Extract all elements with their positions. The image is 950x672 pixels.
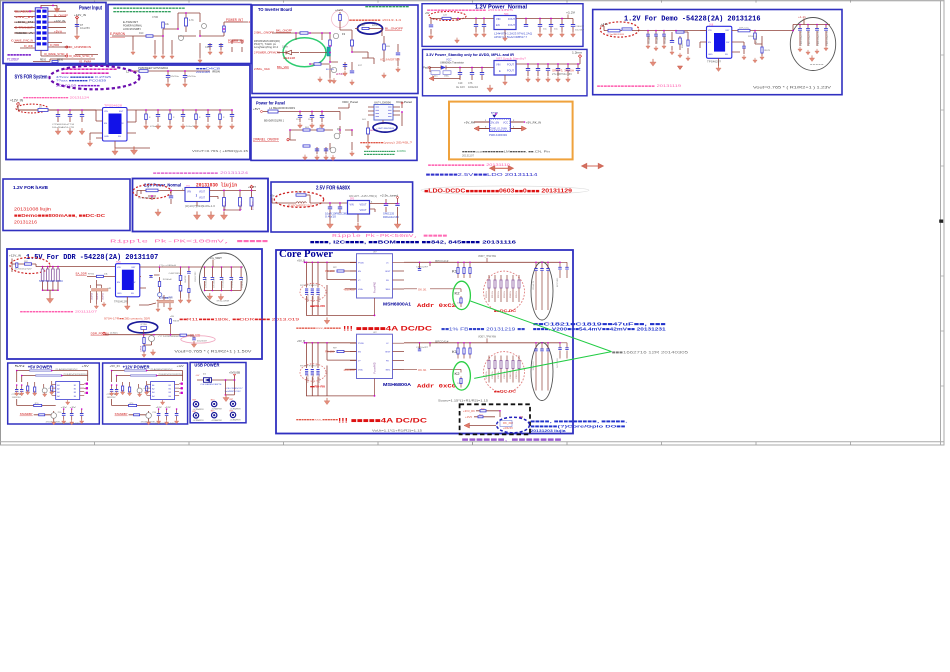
- svg-text:VCC: VCC: [503, 122, 508, 125]
- svg-text:P/C?PTP1/R5?: P/C?PTP1/R5?: [300, 365, 318, 367]
- svg-text:C?3/100u/R: C?3/100u/R: [232, 277, 234, 288]
- svg-text:27u DR?10u 16V: 27u DR?10u 16V: [552, 73, 572, 76]
- svg-text:100u/6.3V: 100u/6.3V: [533, 361, 535, 371]
- svg-text:100u/R51: 100u/R51: [657, 34, 659, 44]
- svg-text:R8%L: R8%L: [175, 273, 182, 275]
- svg-text:R288/100: R288/100: [319, 294, 321, 302]
- svg-text:R088/100: R088/100: [307, 374, 309, 382]
- svg-text:NC/C1821: NC/C1821: [557, 277, 559, 287]
- svg-text:STANDBY: STANDBY: [115, 412, 128, 416]
- svg-text:+5V_IN: +5V_IN: [110, 365, 120, 368]
- svg-text:+5V: +5V: [425, 12, 430, 15]
- svg-text:VDD_Panel: VDD_Panel: [342, 100, 358, 104]
- svg-text:FOUT: FOUT: [507, 63, 514, 67]
- svg-text:PowerPAD: PowerPAD: [374, 282, 377, 293]
- svg-text:MSH6800A: MSH6800A: [383, 382, 412, 387]
- svg-text:R822/1k: R822/1k: [498, 291, 500, 298]
- svg-text:U9 LD?...A15 U?R(1): U9 LD?...A15 U?R(1): [349, 195, 377, 198]
- svg-text:(Ω)10(?)p94[9-09+1.0: (Ω)10(?)p94[9-09+1.0: [185, 206, 216, 208]
- svg-text:SEE-A: SEE-A: [15, 31, 35, 35]
- svg-text:PVDD: PVDD: [358, 263, 365, 265]
- svg-text:MSH6000A1: MSH6000A1: [383, 302, 412, 307]
- svg-text:+5V-A: +5V-A: [54, 30, 63, 34]
- svg-text:■■■■■■■■■■■■■■■■■ 20111107: ■■■■■■■■■■■■■■■■■ 20111107: [20, 310, 98, 314]
- svg-text:C160/C?: C160/C?: [575, 26, 585, 28]
- svg-text:TPS4628?: TPS4628?: [707, 62, 722, 64]
- svg-text:R17: R17: [358, 65, 363, 67]
- svg-text:+5V?: +5V?: [253, 107, 260, 111]
- svg-text:TPS0412R: TPS0412R: [114, 301, 127, 304]
- svg-text:+1u: +1u: [143, 388, 146, 390]
- svg-text:#R1(+/-R5R: #R1(+/-R5R: [216, 300, 230, 302]
- svg-text:■LDO-DCDC■■■■■■■■0603■■0■■■ 2: ■LDO-DCDC■■■■■■■■0603■■0■■■ 20131129: [424, 188, 572, 194]
- svg-text:C33: C33: [205, 46, 210, 49]
- svg-text:12: 12: [126, 70, 130, 74]
- svg-text:R: R: [149, 117, 151, 119]
- svg-text:■■■■■■■■■■■■■■■■■ 20131124: ■■■■■■■■■■■■■■■■■ 20131124: [23, 96, 90, 100]
- svg-text:VGA: VGA: [358, 369, 363, 372]
- svg-text:■■R8-R0: ■■R8-R0: [310, 384, 326, 388]
- svg-text:+5V: +5V: [82, 365, 90, 368]
- svg-text:C8[10u/R?: C8[10u/R?: [416, 347, 429, 349]
- svg-text:E-PWRON: E-PWRON: [110, 32, 126, 36]
- svg-text:GND: GND: [104, 136, 109, 138]
- svg-text:■■■■, I2C■■■■, ■■BOM■■■■■ ■■84: ■■■■, I2C■■■■, ■■BOM■■■■■ ■■842, 845■■■■…: [310, 240, 517, 246]
- svg-text:S01: S01: [362, 119, 367, 121]
- svg-text:20131216: 20131216: [14, 220, 37, 225]
- svg-text:+12v: +12v: [601, 23, 609, 26]
- svg-text:5R9: 5R9: [504, 13, 509, 16]
- svg-text:0u 10V: 0u 10V: [456, 86, 465, 89]
- svg-text:+2.5v_tuned: +2.5v_tuned: [380, 193, 398, 197]
- svg-text:C1R1/100u/6.3V: C1R1/100u/6.3V: [809, 31, 811, 46]
- svg-text:S?D?/C4R/PJ/R50: S?D?/C4R/PJ/R50: [39, 281, 64, 283]
- svg-text:+5CRAWR5R: +5CRAWR5R: [211, 419, 223, 422]
- svg-text:20131107: 20131107: [462, 155, 475, 158]
- svg-text:■■1% FB■■■■ 20131219 ■■: ■■1% FB■■■■ 20131219 ■■: [441, 327, 526, 332]
- svg-text:C1R0/100u/6.3V: C1R0/100u/6.3V: [801, 31, 803, 46]
- svg-text:220R: 220R: [372, 25, 378, 27]
- svg-text:PJ-POWER?2(10): PJ-POWER?2(10): [288, 205, 312, 208]
- svg-text:R2C: R2C: [24, 261, 29, 263]
- svg-text:FOUT: FOUT: [508, 23, 515, 27]
- svg-text:VIN: VIN: [708, 30, 712, 32]
- svg-text:■■■■■■■■: ■■■■■■■■: [7, 53, 31, 57]
- svg-text:100u/R0A0/10-C7R: 100u/R0A0/10-C7R: [52, 126, 74, 129]
- svg-text:24k: 24k: [104, 274, 108, 276]
- svg-text:EN: EN: [104, 123, 107, 125]
- svg-text:A?GN: A?GN: [491, 112, 498, 115]
- svg-text:▪▪▪▪▪: ▪▪▪▪▪: [810, 64, 825, 66]
- svg-text:FOUT: FOUT: [508, 17, 515, 21]
- svg-text:10k/R51: 10k/R51: [97, 293, 99, 300]
- svg-text:10u: 10u: [543, 29, 547, 31]
- svg-text:VIN: VIN: [104, 111, 108, 113]
- svg-text:VIN: VIN: [350, 204, 354, 207]
- svg-text:■■■■■■■■■■■: ■■■■■■■■■■■: [364, 153, 396, 156]
- svg-text:SW: SW: [726, 42, 729, 44]
- svg-text:STANDBY: STANDBY: [20, 412, 33, 416]
- svg-text:P10: P10: [153, 412, 157, 414]
- svg-text:PLB4R5/P022/0R2/5C: PLB4R5/P022/0R2/5C: [159, 374, 184, 376]
- svg-text:R842/1k: R842/1k: [510, 291, 512, 298]
- svg-text:+12V POWER: +12V POWER: [123, 364, 150, 369]
- svg-text:L1 BEAD/ROD/2R9: L1 BEAD/ROD/2R9: [269, 107, 296, 110]
- svg-text:+12V: +12V: [177, 365, 184, 368]
- svg-text:??xxx ■■■■■■■ PCG639: ??xxx ■■■■■■■ PCG639: [56, 79, 107, 83]
- svg-text:+RK/3V: +RK/3V: [503, 427, 513, 430]
- svg-text:Vout=0.765 * ( R1/R2+1 ) 1.5: Vout=0.765 * ( R1/R2+1 ) 1.50V: [174, 349, 252, 353]
- svg-text:1.8: 1.8: [457, 383, 460, 385]
- svg-text:PLA20R0/20R2/5C: PLA20R0/20R2/5C: [151, 368, 174, 371]
- svg-text:VDD?_?PW.NW: VDD?_?PW.NW: [478, 335, 497, 338]
- svg-text:K2: K2: [455, 291, 460, 295]
- svg-text:1.2V For Demo -54228(2A) 2013: 1.2V For Demo -54228(2A) 20131216: [624, 15, 760, 23]
- svg-text:R188/100: R188/100: [313, 294, 315, 302]
- svg-text:2.8V Power_Normal: 2.8V Power_Normal: [144, 182, 181, 187]
- svg-text:■■■■■■■■■■■■■■■■■■: ■■■■■■■■■■■■■■■■■■: [113, 11, 172, 14]
- svg-text:C?2/100u/R: C?2/100u/R: [222, 277, 224, 288]
- svg-text:R240/1k: R240/1k: [682, 41, 684, 48]
- svg-text:E-TRANSIT: E-TRANSIT: [15, 26, 33, 30]
- svg-text:5V_6N: 5V_6N: [491, 122, 499, 125]
- svg-text:IO_UNK: IO_UNK: [24, 44, 33, 48]
- svg-text:Power Input: Power Input: [79, 6, 102, 12]
- svg-text:+C1m/R0/120R: +C1m/R0/120R: [606, 34, 624, 36]
- svg-text:+*C 14CR2/630HC: +*C 14CR2/630HC: [158, 336, 180, 338]
- svg-text:R802/1k: R802/1k: [486, 371, 488, 378]
- svg-text:F3: F3: [342, 32, 346, 36]
- svg-text:■■■■■■■■■■■■■■■■■■■■■■: ■■■■■■■■■■■■■■■■■■■■■■: [113, 7, 186, 10]
- svg-text:16V/10u: 16V/10u: [187, 76, 197, 78]
- svg-text:TO Inverter Board: TO Inverter Board: [258, 7, 292, 13]
- svg-text:47uF/R0: 47uF/R0: [756, 34, 758, 43]
- svg-text:RES0: RES0: [57, 59, 64, 62]
- svg-text:■■■■■■■■■■■■■: ■■■■■■■■■■■■■: [365, 6, 410, 9]
- svg-text:VOUT: VOUT: [199, 191, 205, 194]
- svg-text:LOW-STANDBY: LOW-STANDBY: [123, 27, 141, 31]
- svg-text:SW: SW: [132, 282, 135, 284]
- svg-text:Ripple Pk-PK<50mV, ■■■■■: Ripple Pk-PK<50mV, ■■■■■: [332, 234, 448, 239]
- svg-text:10u: 10u: [554, 29, 558, 31]
- svg-text:POWER_INT: POWER_INT: [226, 18, 243, 22]
- svg-text:+5VSUSB: +5VSUSB: [229, 371, 240, 374]
- svg-text:+5CRAWR5R: +5CRAWR5R: [193, 419, 205, 422]
- svg-text:#4R: #4R: [107, 288, 111, 290]
- svg-text:PowerPAD: PowerPAD: [374, 362, 377, 373]
- svg-text:2.5V FOR 6A80X: 2.5V FOR 6A80X: [316, 186, 351, 192]
- svg-text:PLA20R0/20R2/5C: PLA20R0/20R2/5C: [56, 368, 79, 371]
- svg-text:SYS FOR System: SYS FOR System: [15, 75, 48, 81]
- svg-text:GND_IO_5V6N: GND_IO_5V6N: [491, 129, 507, 131]
- svg-text:R?0k: R?0k: [88, 274, 95, 276]
- svg-text:10u/16V: 10u/16V: [575, 30, 585, 32]
- svg-text:R832/1k: R832/1k: [504, 291, 506, 298]
- svg-text:USB POWER: USB POWER: [194, 363, 220, 368]
- svg-text:3V8: 3V8: [709, 24, 714, 27]
- svg-text:C?R0R: C?R0R: [141, 345, 143, 352]
- svg-text:5R3: 5R3: [350, 199, 355, 201]
- svg-text:20131008 liujin: 20131008 liujin: [14, 207, 52, 212]
- svg-text:2 BKL_VAC: 2 BKL_VAC: [254, 67, 271, 71]
- svg-text:POWER_SW: POWER_SW: [228, 39, 244, 43]
- svg-text:K2: K2: [455, 372, 460, 376]
- svg-text:R852/1k: R852/1k: [516, 371, 518, 378]
- svg-text:R088/100: R088/100: [307, 294, 309, 302]
- svg-text:VIN: VIN: [117, 267, 121, 269]
- svg-text:+5CRAWR5R: +5CRAWR5R: [230, 419, 242, 422]
- svg-text:RES0: RES0: [40, 59, 47, 62]
- svg-text:■■DC-DC: ■■DC-DC: [494, 389, 517, 393]
- svg-text:+CR-C18R5C/17: +CR-C18R5C/17: [225, 388, 244, 390]
- svg-text:■■R11■■■■180k, ■■DDR■■■■ 2013.: ■■R11■■■■180k, ■■DDR■■■■ 2013.019: [179, 318, 299, 322]
- svg-text:L0: L0: [39, 106, 42, 109]
- svg-text:10R/25V: 10R/25V: [12, 397, 22, 399]
- svg-text:OK.30.: OK.30.: [418, 288, 427, 291]
- svg-text:+12V: +12V: [165, 407, 172, 409]
- svg-text:VOUT: VOUT: [199, 197, 205, 200]
- svg-text:100u/6.3V: 100u/6.3V: [533, 280, 535, 290]
- svg-text:Pad-D: Pad-D: [423, 66, 431, 70]
- svg-text:P1105EP: P1105EP: [7, 58, 19, 62]
- svg-text:VGA: VGA: [358, 288, 363, 291]
- svg-text:BL_ON/OFF: BL_ON/OFF: [385, 27, 403, 31]
- svg-text:UM6060s Transistor: UM6060s Transistor: [440, 62, 464, 65]
- svg-text:100u/R50: 100u/R50: [649, 34, 651, 44]
- svg-text:Ripple Pk-PK<100mV, ■■■■■: Ripple Pk-PK<100mV, ■■■■■: [110, 240, 269, 245]
- svg-text:C1R3/100u/6.3V: C1R3/100u/6.3V: [827, 31, 829, 46]
- svg-text:R822/1k: R822/1k: [498, 371, 500, 378]
- svg-text:+12V_IN: +12V_IN: [54, 19, 65, 23]
- svg-text:■■Demo■■■800mA■■, ■■DC-DC: ■■Demo■■■800mA■■, ■■DC-DC: [14, 213, 106, 218]
- svg-text:R: R: [223, 117, 225, 119]
- svg-text:10R/25V: 10R/25V: [107, 397, 117, 399]
- svg-text:VCC-Panel: VCC-Panel: [396, 100, 412, 104]
- svg-text:L24# 879-1.2A23 97%/1.2AQ: L24# 879-1.2A23 97%/1.2AQ: [494, 32, 532, 36]
- svg-text:BST: BST: [119, 111, 124, 113]
- svg-text:BEAD(ROD)2R9 1: BEAD(ROD)2R9 1: [264, 120, 285, 123]
- svg-text:IO_UNPWRON: IO_UNPWRON: [69, 45, 91, 49]
- svg-text:■■■■■■■xxx,■■■■■■: ■■■■■■■xxx,■■■■■■: [296, 326, 342, 330]
- svg-text:1.5V For DDR -54228(2A) 20131: 1.5V For DDR -54228(2A) 20131107: [26, 254, 158, 262]
- svg-text:PLB4R5/P022/0R2/5C: PLB4R5/P022/0R2/5C: [64, 374, 89, 376]
- svg-text:R10: R10: [139, 32, 144, 35]
- svg-text:16V/10u: 16V/10u: [170, 76, 180, 78]
- svg-text:BL_ON/OFF: BL_ON/OFF: [54, 13, 68, 17]
- svg-text:R812/1k: R812/1k: [492, 291, 494, 298]
- svg-text:VIN: VIN: [496, 63, 500, 67]
- svg-text:PVDD: PVDD: [358, 343, 365, 345]
- svg-text:VIN: VIN: [187, 191, 191, 194]
- svg-text:10u/25V: 10u/25V: [155, 423, 165, 425]
- svg-text:!!! ■■■■■4A DC/DC: !!! ■■■■■4A DC/DC: [338, 419, 428, 425]
- svg-text:Sourc=1.15*(1+R1/R2)=1.15: Sourc=1.15*(1+R1/R2)=1.15: [438, 399, 488, 403]
- svg-text:EN: EN: [358, 271, 361, 273]
- svg-text:+DC_IN: +DC_IN: [15, 20, 33, 24]
- svg-text:+1.2v: +1.2v: [798, 16, 807, 19]
- svg-text:+5V_IN: +5V_IN: [15, 15, 33, 19]
- svg-text:EN: EN: [496, 23, 500, 27]
- svg-text:LongSamp5ng 10.4: LongSamp5ng 10.4: [254, 45, 279, 49]
- svg-text:C?4/100u/R: C?4/100u/R: [242, 277, 244, 288]
- svg-text:10k■■R?: 10k■■R?: [160, 297, 174, 300]
- svg-text:K1: K1: [452, 269, 457, 273]
- svg-text:VIN: VIN: [496, 17, 500, 21]
- svg-text:C?1/100u/R: C?1/100u/R: [213, 277, 215, 288]
- svg-text:1N4148: 1N4148: [283, 57, 296, 60]
- svg-text:R188/100: R188/100: [313, 374, 315, 382]
- svg-text:APCR GB 5GA2 DRB517.7: APCR GB 5GA2 DRB517.7: [494, 35, 527, 39]
- svg-text:C?0/100u/R: C?0/100u/R: [206, 277, 208, 288]
- svg-text:■■■■■■, ■■■■■■■: ■■■■■■, ■■■■■■■: [461, 437, 561, 443]
- svg-text:■■■■■■■■■■■■■■■■■ 20131125: ■■■■■■■■■■■■■■■■■ 20131125: [427, 8, 514, 12]
- svg-text:C8[10u/R?: C8[10u/R?: [416, 267, 429, 269]
- svg-text:20131005: 20131005: [196, 70, 210, 74]
- svg-text:10u: 10u: [308, 119, 311, 121]
- svg-text:PWR/BEEP GP5/CEB04: PWR/BEEP GP5/CEB04: [138, 67, 169, 70]
- svg-text:C?0R: C?0R: [152, 16, 158, 19]
- svg-text:VOUT: VOUT: [360, 204, 367, 207]
- svg-text:AD_INVERTER: AD_INVERTER: [380, 58, 400, 62]
- svg-text:EN: EN: [117, 282, 120, 284]
- svg-text:■■■■■■■■■■■■■■■■■ 20131124: ■■■■■■■■■■■■■■■■■ 20131124: [153, 171, 248, 175]
- svg-text:TPS54628: TPS54628: [104, 104, 123, 108]
- svg-text:EN: EN: [708, 42, 711, 44]
- svg-text:+3V3_RK: +3V3_RK: [463, 409, 475, 413]
- svg-text:■■■■■■■■■■ 2013.14: ■■■■■■■■■■ 2013.14: [349, 18, 402, 22]
- svg-text:2u0/R5P5C/3V: 2u0/R5P5C/3V: [225, 391, 242, 393]
- svg-text:+5V_RK_IN: +5V_RK_IN: [526, 120, 541, 124]
- svg-text:P/C?PTP1/R5?: P/C?PTP1/R5?: [300, 285, 318, 287]
- svg-text:Power for Panel: Power for Panel: [256, 101, 285, 106]
- svg-text:470u/R03: 470u/R03: [225, 200, 227, 210]
- svg-text:1.2V FOR hAVB: 1.2V FOR hAVB: [13, 185, 48, 190]
- svg-text:■■■■■■■■■(yyyy) 2E/45L?: ■■■■■■■■■(yyyy) 2E/45L?: [360, 141, 413, 145]
- svg-text:EA_DDR: EA_DDR: [76, 272, 87, 276]
- svg-text:470u/R13: 470u/R13: [241, 200, 243, 210]
- svg-text:100m: 100m: [282, 46, 288, 49]
- svg-text:C1R0/C?RC: C1R0/C?RC: [195, 271, 197, 282]
- svg-text:R?50: R?50: [141, 324, 148, 326]
- svg-text:+12V: +12V: [335, 8, 343, 12]
- svg-text:PG.100: PG.100: [325, 270, 335, 273]
- svg-text:C1R2/100u/6.3V: C1R2/100u/6.3V: [818, 31, 820, 46]
- svg-text:180u: 180u: [444, 76, 450, 78]
- svg-text:■■R8-R0: ■■R8-R0: [310, 304, 326, 308]
- svg-text:PWR-K4RF3R2: PWR-K4RF3R2: [489, 134, 508, 137]
- svg-text:C76: C76: [468, 82, 473, 85]
- svg-text:R: R: [173, 117, 175, 119]
- svg-text:5/N: 5/N: [15, 365, 26, 368]
- svg-text:+5V_RK: +5V_RK: [464, 120, 475, 124]
- svg-text:+5V: +5V: [170, 316, 174, 318]
- svg-text:1.8: 1.8: [457, 303, 460, 305]
- svg-text:10k/R52: 10k/R52: [102, 293, 104, 300]
- svg-text:+12V_IN: +12V_IN: [10, 99, 24, 103]
- svg-text:Core Power: Core Power: [279, 249, 334, 260]
- svg-text:+5v: +5v: [270, 194, 275, 198]
- svg-text:C1 B1/B5(C)10V: C1 B1/B5(C)10V: [138, 198, 157, 200]
- svg-text:IO_PWM: IO_PWM: [79, 60, 92, 64]
- svg-text:+5V POWER: +5V POWER: [28, 364, 53, 369]
- svg-text:2 POWER_OFF/ALTO: 2 POWER_OFF/ALTO: [254, 51, 280, 55]
- svg-text:2 BKL_ONOFF: 2 BKL_ONOFF: [254, 31, 274, 35]
- svg-text:GND: GND: [708, 54, 713, 56]
- svg-text:9704-1?R■■(38) ceramic 35R: 9704-1?R■■(38) ceramic 35R: [104, 317, 150, 321]
- svg-text:OK.30.: OK.30.: [418, 369, 427, 372]
- svg-text:100u/R52: 100u/R52: [665, 34, 667, 44]
- svg-text:R852/1k: R852/1k: [516, 291, 518, 298]
- svg-text:1.2mm: 1.2mm: [572, 51, 583, 55]
- svg-text:■■■1662716 12R 20140305: ■■■1662716 12R 20140305: [612, 350, 689, 355]
- svg-text:R288/100: R288/100: [319, 374, 321, 382]
- svg-text:2K70: 2K70: [764, 50, 771, 52]
- svg-text:+5V: +5V: [70, 407, 77, 409]
- svg-text:E: E: [499, 69, 501, 73]
- svg-text:VDD?_?PW.NW: VDD?_?PW.NW: [478, 255, 497, 258]
- svg-text:BKL_VAC: BKL_VAC: [277, 65, 289, 69]
- svg-text:IO_WAKE_SYNC_IN: IO_WAKE_SYNC_IN: [11, 39, 33, 43]
- svg-text:GND: GND: [117, 293, 122, 295]
- svg-text:BPCCA1#: BPCCA1#: [435, 260, 449, 263]
- svg-text:C?Pb80/100u/TT34: C?Pb80/100u/TT34: [52, 124, 75, 126]
- svg-text:22u: 22u: [296, 119, 299, 121]
- svg-text:3.3V Power_Standby only for AV: 3.3V Power_Standby only for AVDD, MPLL a…: [426, 52, 514, 57]
- svg-text:Vout=0.765 * ( R1/R2+1 ) 1.2: Vout=0.765 * ( R1/R2+1 ) 1.23V: [753, 86, 832, 90]
- svg-text:10u/16V: 10u/16V: [197, 341, 208, 343]
- svg-text:VOUT: VOUT: [360, 209, 367, 212]
- svg-text:+1u: +1u: [48, 388, 51, 390]
- svg-text:+3V5: +3V5: [465, 415, 473, 419]
- svg-text:■■■■■■■■■■■■■■■■■ 20131110: ■■■■■■■■■■■■■■■■■ 20131110: [428, 163, 510, 167]
- svg-text:PG.100: PG.100: [325, 351, 335, 354]
- svg-text:4.7k: 4.7k: [189, 19, 194, 22]
- svg-text:L24: L24: [443, 14, 447, 16]
- svg-text:R#06uF: R#06uF: [163, 279, 173, 281]
- svg-text:R6?: R6?: [361, 25, 366, 27]
- svg-text:EN: EN: [358, 352, 361, 354]
- svg-text:+12V_IN: +12V_IN: [74, 13, 86, 17]
- svg-text:R: R: [199, 117, 201, 119]
- svg-text:VOUT=0.76S ( +R5RQp4.15: VOUT=0.76S ( +R5RQp4.15: [192, 149, 249, 153]
- svg-text:R768: R768: [748, 36, 755, 38]
- svg-text:C19: C19: [458, 82, 463, 85]
- svg-text:+1R/P 880/9309: +1R/P 880/9309: [376, 128, 395, 130]
- svg-text:R20: R20: [386, 46, 391, 48]
- svg-text:VR? Sysclk Standby?: VR? Sysclk Standby?: [496, 58, 527, 61]
- svg-text:R06u10c/16V: R06u10c/16V: [383, 216, 399, 219]
- svg-text:K1: K1: [452, 350, 457, 354]
- svg-text:R802/1k: R802/1k: [486, 291, 488, 298]
- svg-text:470u/R23: 470u/R23: [253, 200, 255, 210]
- svg-text:10u/25V: 10u/25V: [60, 423, 70, 425]
- svg-text:SRR?3, 3R05A: SRR?3, 3R05A: [552, 69, 574, 73]
- svg-text:10k: 10k: [165, 23, 170, 26]
- svg-text:L?(+++/400uH: L?(+++/400uH: [159, 265, 176, 267]
- svg-text:2/PANEL_ON/OFF: 2/PANEL_ON/OFF: [253, 138, 279, 142]
- svg-text:IO_WAKE_SYNC_O: IO_WAKE_SYNC_O: [44, 52, 69, 56]
- svg-text:IO_WAKE_SYNC_O: IO_WAKE_SYNC_O: [69, 54, 94, 58]
- svg-text:10u/25V: 10u/25V: [80, 27, 90, 30]
- svg-text:2C%D4C(?)2V: 2C%D4C(?)2V: [15, 269, 33, 271]
- svg-text:Addr 0xC2: Addr 0xC2: [417, 302, 457, 309]
- svg-text:BKL2/C80: BKL2/C80: [326, 69, 335, 71]
- svg-text:10k/R50: 10k/R50: [91, 293, 93, 300]
- svg-text:VoUt=1.1*(1+R1/R2)=1.15: VoUt=1.1*(1+R1/R2)=1.15: [372, 429, 422, 433]
- svg-text:IO_PWM: IO_PWM: [50, 43, 59, 47]
- svg-text:Addr 0xC0: Addr 0xC0: [417, 383, 457, 390]
- svg-text:+1.2V: +1.2V: [566, 11, 575, 15]
